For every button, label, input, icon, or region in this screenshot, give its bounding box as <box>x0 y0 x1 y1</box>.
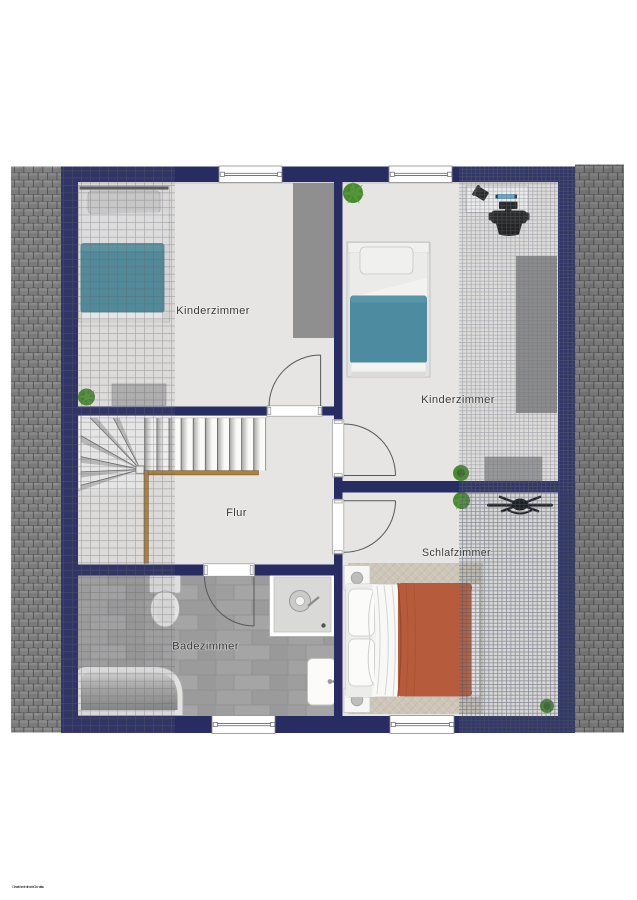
svg-text:Schlafzimmer: Schlafzimmer <box>422 547 491 559</box>
svg-text:Gezeichnet mit meinGrundriss: Gezeichnet mit meinGrundriss <box>12 884 44 889</box>
svg-text:Badezimmer: Badezimmer <box>172 641 239 653</box>
svg-text:Flur: Flur <box>226 507 247 519</box>
svg-text:Kinderzimmer: Kinderzimmer <box>421 394 495 406</box>
svg-text:Kinderzimmer: Kinderzimmer <box>176 305 250 317</box>
